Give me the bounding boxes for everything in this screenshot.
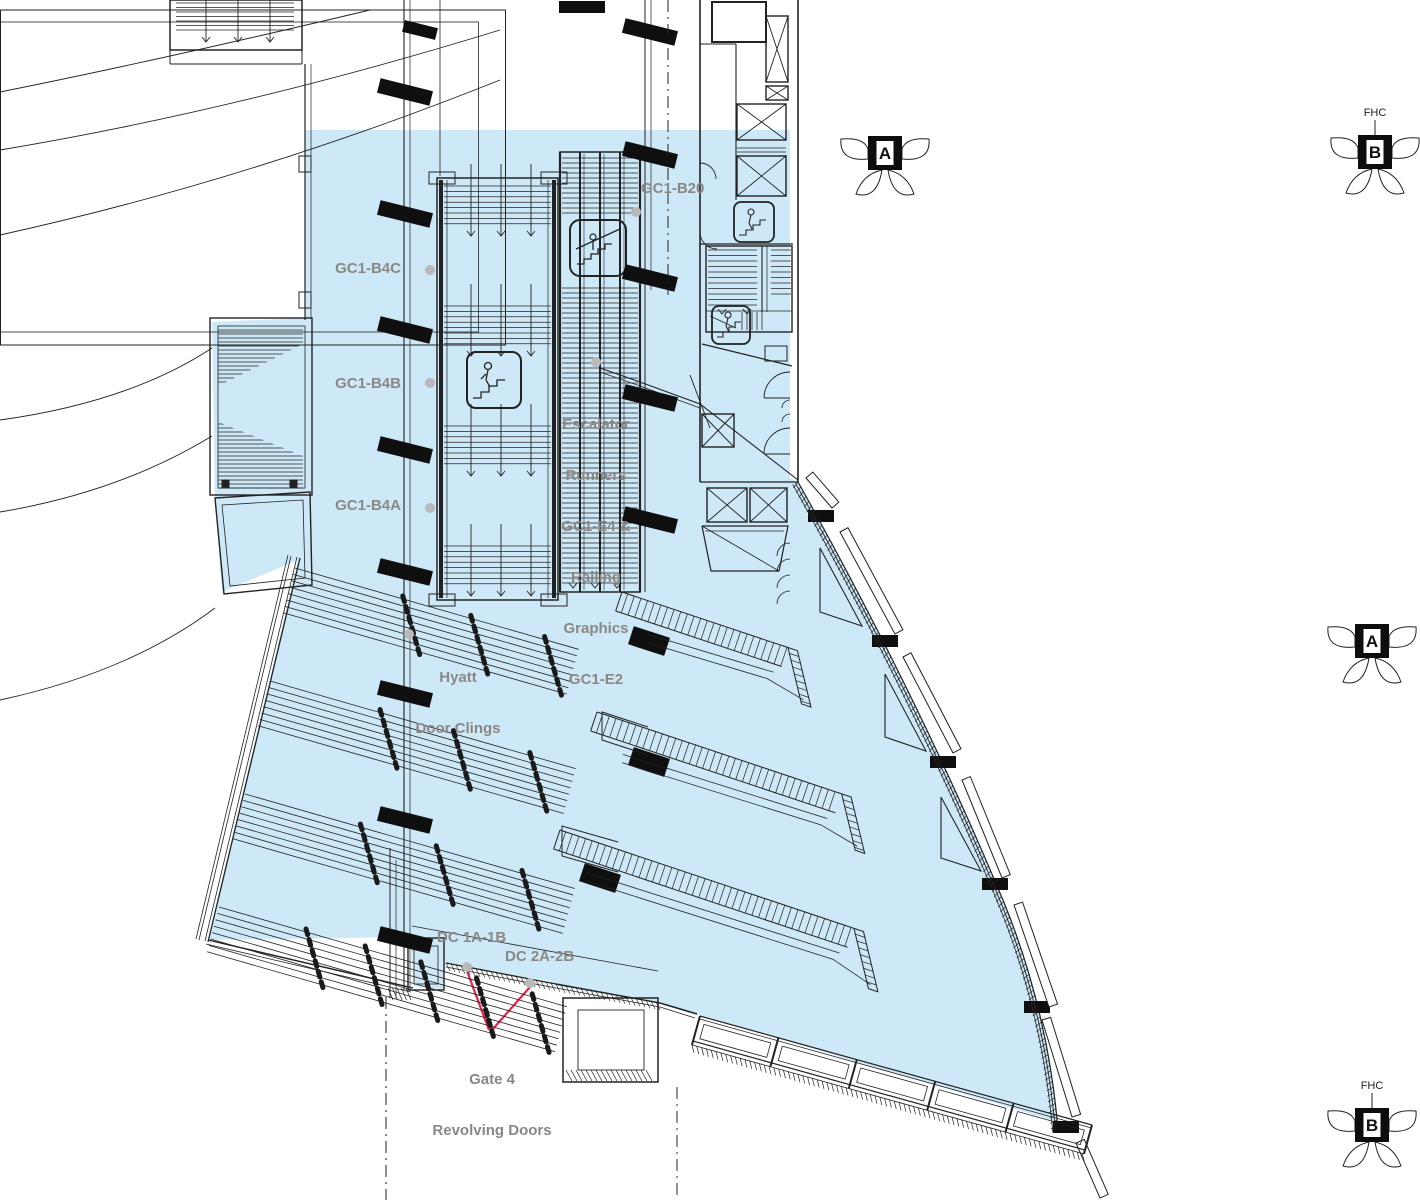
note-line: Door Clings [416,720,501,737]
note-line: GC1-E2 [561,671,630,688]
note-line: Revolving Doors [432,1122,551,1139]
label-gate-note: Gate 4 Revolving Doors [432,1037,551,1173]
note-line: Runners [561,467,630,484]
label-layer: GC1-B20 GC1-B4C GC1-B4B GC1-B4A Escalato… [0,0,1420,1200]
note-line: Graphics [561,620,630,637]
label-gc1-b4c: GC1-B4C [335,260,401,277]
note-line: Escalator [561,416,630,433]
label-gc1-b4b: GC1-B4B [335,375,401,392]
label-hyatt-note: Hyatt Door Clings [416,635,501,771]
note-line: Gate 4 [432,1071,551,1088]
label-dc-1a-1b: DC 1A-1B [437,929,506,946]
note-line: GC1-E4 & [561,518,630,535]
label-dc-2a-2b: DC 2A-2B [505,948,574,965]
note-line: Hyatt [416,669,501,686]
label-gc1-b4a: GC1-B4A [335,497,401,514]
label-escalator-note: Escalator Runners GC1-E4 & Railing Graph… [561,382,630,722]
label-gc1-b20: GC1-B20 [641,180,704,197]
note-line: Railing [561,569,630,586]
floor-plan: A FHC B A FHC B GC1-B20 GC1-B4C GC1-B4B … [0,0,1420,1200]
